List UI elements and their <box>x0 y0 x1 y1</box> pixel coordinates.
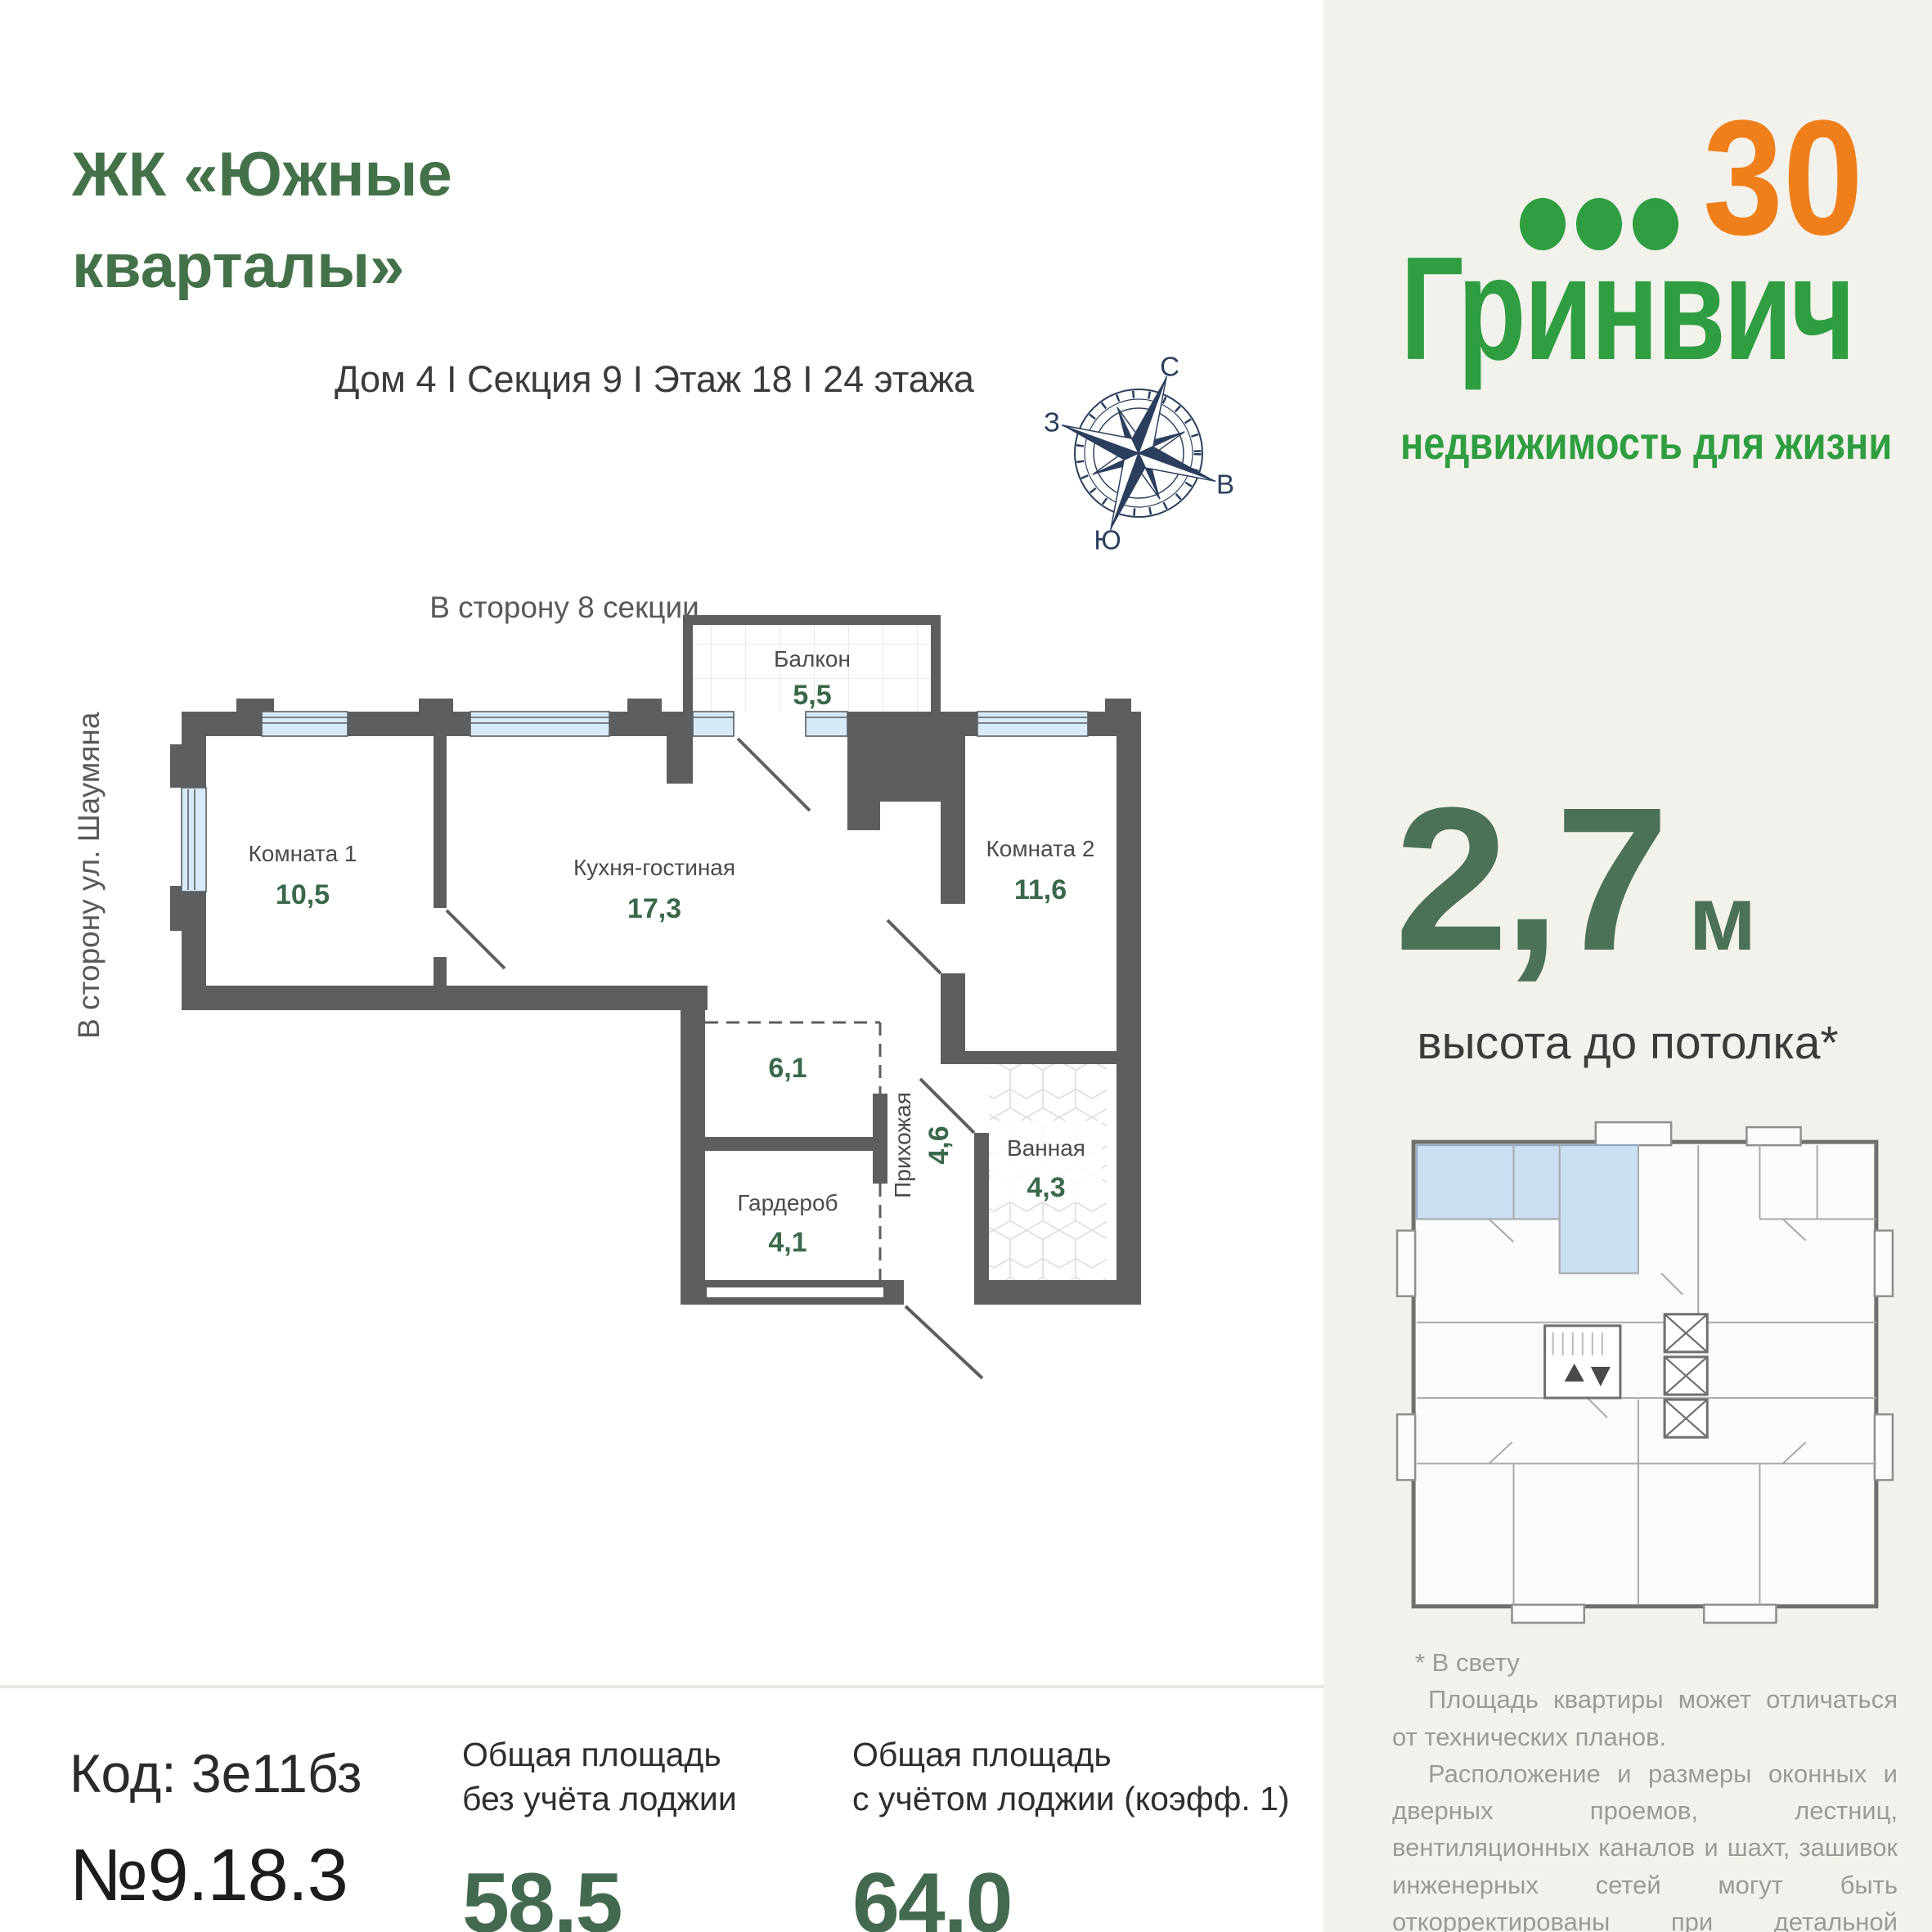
apartment-code: Код: 3е11бз <box>70 1742 362 1804</box>
page-title-line2: кварталы» <box>72 221 452 312</box>
room-area-kitchen: 17,3 <box>627 893 681 924</box>
direction-label-left: В сторону ул. Шаумяна <box>72 671 106 1080</box>
area-without-label-line2: без учёта лоджии <box>462 1777 737 1821</box>
area-with-label-line2: с учётом лоджии (коэфф. 1) <box>852 1777 1290 1821</box>
ceiling-height-value: 2,7 <box>1395 777 1665 982</box>
area-with-label-line1: Общая площадь <box>852 1732 1290 1777</box>
compass-rose-icon: С В Ю З <box>1029 344 1248 563</box>
ceiling-height-unit: м <box>1689 865 1757 971</box>
room-area-nook: 6,1 <box>768 1053 806 1084</box>
wall-niche <box>707 1287 883 1297</box>
room-area-bathroom: 4,3 <box>1027 1172 1065 1203</box>
room-label-bathroom: Ванная <box>1007 1135 1085 1161</box>
room-area-bedroom2: 11,6 <box>1014 874 1067 905</box>
apartment-number: №9.18.3 <box>70 1834 348 1918</box>
total-area-with-loggia: Общая площадь с учётом лоджии (коэфф. 1)… <box>852 1732 1290 1932</box>
disclaimer-note: * В свету <box>1392 1644 1898 1681</box>
logo-tagline: недвижимость для жизни <box>1400 420 1892 466</box>
apartment-location-subtitle: Дом 4 I Секция 9 I Этаж 18 I 24 этажа <box>245 358 1063 401</box>
ceiling-height-label: высота до потолка* <box>1323 1016 1932 1070</box>
page-title: ЖК «Южные кварталы» <box>72 129 452 313</box>
apartment-floor-plan: Балкон 5,5 Комната 1 10,5 Кухня-гостиная… <box>127 609 1141 1382</box>
sidebar: 30 Гринвич недвижимость для жизни 2,7 м … <box>1323 0 1932 1932</box>
room-label-balcony: Балкон <box>774 646 851 672</box>
compass-south-label: Ю <box>1094 525 1121 555</box>
page-title-line1: ЖК «Южные <box>72 129 452 221</box>
area-without-label-line1: Общая площадь <box>462 1732 737 1777</box>
room-label-bedroom2: Комната 2 <box>986 836 1095 861</box>
room-area-balcony: 5,5 <box>793 680 831 711</box>
room-label-bedroom1: Комната 1 <box>249 841 357 866</box>
compass-star <box>1034 348 1243 558</box>
ceiling-height: 2,7 м <box>1395 777 1756 982</box>
area-with-value: 64,0 <box>852 1855 1290 1932</box>
footer-divider <box>0 1685 1325 1688</box>
room-label-wardrobe: Гардероб <box>737 1190 838 1215</box>
room-area-hallway: 4,6 <box>923 1126 955 1164</box>
stairwell <box>1545 1326 1620 1398</box>
compass-west-label: З <box>1044 407 1060 438</box>
room-area-wardrobe: 4,1 <box>768 1227 806 1258</box>
building-floor-overview <box>1391 1111 1899 1644</box>
flyer-page: ЖК «Южные кварталы» Дом 4 I Секция 9 I Э… <box>0 0 1932 1932</box>
room-area-bedroom1: 10,5 <box>276 879 330 910</box>
elevators <box>1665 1314 1707 1437</box>
logo-brand-name: Гринвич <box>1400 236 1853 383</box>
total-area-without-loggia: Общая площадь без учёта лоджии 58,5 <box>462 1732 737 1932</box>
room-label-hallway: Прихожая <box>890 1092 915 1198</box>
disclaimer-paragraph-1: Площадь квартиры может отличаться от тех… <box>1392 1681 1898 1755</box>
area-without-value: 58,5 <box>462 1855 737 1932</box>
disclaimer: * В свету Площадь квартиры может отличат… <box>1392 1644 1898 1932</box>
compass-east-label: В <box>1216 470 1234 500</box>
disclaimer-paragraph-2: Расположение и размеры оконных и дверных… <box>1392 1755 1898 1932</box>
room-label-kitchen: Кухня-гостиная <box>573 855 735 880</box>
compass-north-label: С <box>1160 352 1179 382</box>
